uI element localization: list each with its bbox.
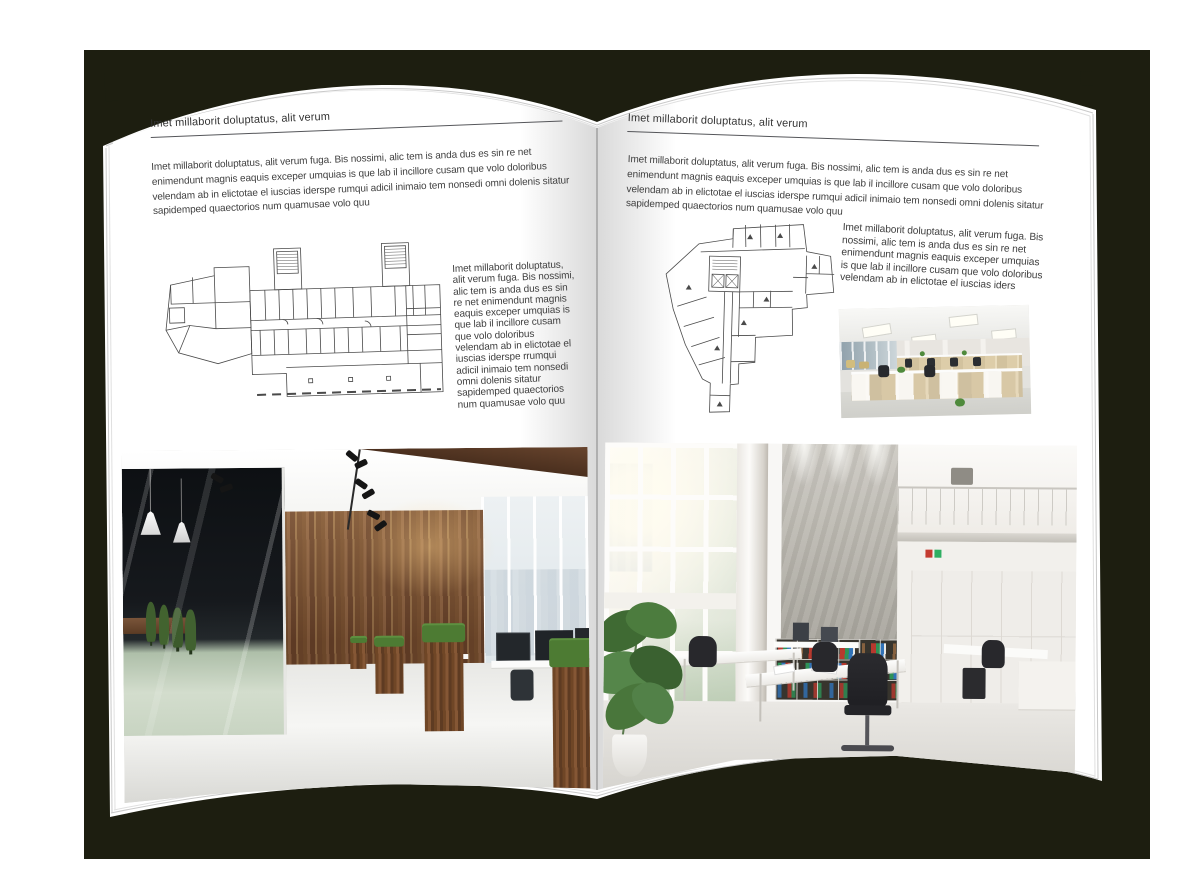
planter-box (552, 658, 591, 803)
desk-leg (896, 660, 898, 709)
safety-sign (935, 550, 942, 558)
desk-monitor (496, 632, 531, 662)
glass-meeting-room (122, 467, 287, 736)
waste-bin (962, 668, 986, 699)
office-chair (905, 359, 913, 368)
planter-grass (549, 640, 590, 667)
office-chair (981, 640, 1005, 668)
spine-notch-right (1080, 71, 1093, 86)
office-chair (950, 358, 958, 367)
office-chair (878, 365, 890, 377)
chair-seat (844, 705, 891, 716)
office-photo-small (839, 305, 1031, 418)
planter-box (424, 636, 464, 731)
right-page-caption: Imet millaborit doluptatus, alit verum f… (840, 222, 1051, 296)
chair-backrest (848, 653, 888, 708)
office-chair (973, 357, 981, 366)
magazine-spread-mockup: Imet millaborit doluptatus, alit verum I… (0, 0, 1200, 891)
floor-plan-right (645, 214, 840, 423)
office-chair (510, 669, 534, 701)
chair-post (866, 716, 870, 745)
glass-reflection (122, 467, 287, 736)
left-page-caption: Imet millaborit doluptatus, alit verum f… (452, 259, 582, 411)
desk-leg (759, 673, 761, 722)
railing-posts (897, 488, 1077, 525)
office-photo-left (121, 447, 590, 803)
column (735, 443, 768, 742)
potted-plant (603, 602, 694, 777)
planter-box (375, 644, 403, 694)
planter-grass (374, 638, 404, 647)
chair-base (841, 745, 894, 752)
planter-box (351, 641, 367, 669)
door-markers (683, 231, 819, 409)
desk-cabinet (1019, 661, 1076, 710)
lounge-seat (846, 360, 856, 368)
sunlight-glow (364, 497, 495, 597)
cabinet-fronts (852, 371, 1024, 401)
plant-pot (612, 735, 648, 777)
vent-grille (951, 468, 973, 485)
safety-sign (926, 550, 933, 558)
office-chair (811, 642, 837, 672)
wall-spotlight-glow (861, 444, 892, 487)
concrete-wall (781, 444, 900, 640)
office-chair (924, 365, 936, 377)
planter-grass (350, 638, 367, 643)
wall-spotlight-glow (824, 444, 855, 487)
mezzanine (897, 444, 1077, 543)
desk-plant (955, 398, 965, 407)
lounge-seat (859, 361, 869, 369)
office-photo-right (603, 442, 1077, 793)
floor-plan-left (154, 229, 450, 426)
spine-notch-left (104, 73, 118, 102)
desk-monitor (793, 623, 810, 641)
office-chair-foreground (844, 653, 892, 758)
planter-grass (422, 625, 465, 642)
wall-spotlight-glow (788, 444, 819, 487)
